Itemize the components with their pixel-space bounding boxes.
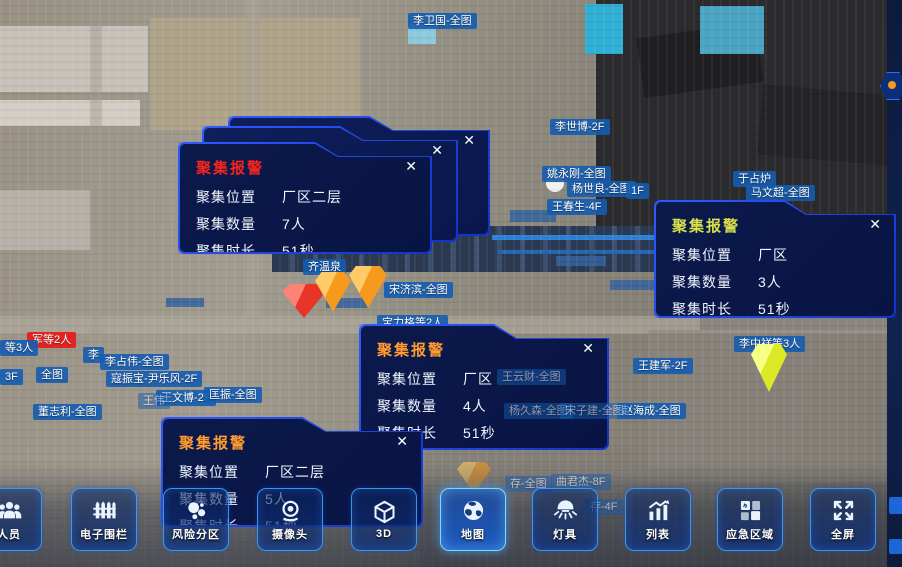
alarm-popup: 聚集报警聚集位置厂区聚集数量3人聚集时长51秒✕: [654, 200, 896, 318]
alarm-popup: 聚集报警聚集位置厂区二层聚集数量7人聚集时长51秒✕: [178, 142, 432, 254]
toolbar-button-label: 应急区域: [726, 526, 774, 542]
alarm-popup-body: 聚集报警聚集位置厂区聚集数量4人聚集时长51秒✕: [361, 326, 607, 448]
alarm-row-label: 聚集位置: [196, 187, 256, 207]
alarm-row-value: 4人: [463, 396, 487, 416]
surveillance-map-screen: 李卫国-全图李世博-2F姚永刚-全图杨世良-全图1F王春生-4F于占炉马文超-全…: [0, 0, 902, 567]
map-label-person[interactable]: 等3人: [0, 340, 38, 356]
alarm-row-value: 3人: [758, 272, 782, 292]
fence-icon: [91, 497, 118, 524]
camera-icon: [277, 497, 304, 524]
toolbar-button-camera[interactable]: 摄像头: [257, 488, 323, 551]
alarm-row-value: 51秒: [758, 299, 791, 319]
alarm-popup-row: 聚集位置厂区二层: [196, 187, 414, 207]
toolbar-button-label: 地图: [461, 526, 485, 542]
toolbar-button-fullscreen[interactable]: 全屏: [810, 488, 876, 551]
close-icon[interactable]: ✕: [431, 143, 443, 157]
map-label-person[interactable]: 李世博-2F: [550, 119, 610, 135]
alarm-row-label: 聚集数量: [377, 396, 437, 416]
risk-icon: [183, 497, 210, 524]
alarm-popup-body: 聚集报警聚集位置厂区聚集数量3人聚集时长51秒✕: [656, 202, 894, 316]
map-label-person[interactable]: 董志利-全图: [33, 404, 102, 420]
map-label-person[interactable]: 王春生-4F: [547, 199, 607, 215]
alarm-popup-row: 聚集数量3人: [672, 272, 878, 292]
toolbar-button-cube[interactable]: 3D: [351, 488, 417, 551]
fullscreen-icon: [830, 497, 857, 524]
alarm-row-value: 51秒: [463, 423, 496, 443]
alarm-popup-row: 聚集位置厂区: [672, 245, 878, 265]
toolbar-button-label: 列表: [646, 526, 670, 542]
toolbar-button-list[interactable]: 列表: [625, 488, 691, 551]
map-label-person[interactable]: 匡振-全图: [204, 387, 262, 403]
toolbar-button-label: 风险分区: [172, 526, 220, 542]
map-label-person[interactable]: 王云财-全图: [497, 369, 566, 385]
alarm-row-value: 厂区二层: [282, 187, 342, 207]
alarm-popup-row: 聚集时长51秒: [672, 299, 878, 319]
alarm-popup-title: 聚集报警: [196, 157, 414, 178]
toolbar-button-label: 灯具: [553, 526, 577, 542]
toolbar-button-label: 人员: [0, 526, 21, 542]
map-label-person[interactable]: 3F: [0, 369, 23, 385]
alarm-row-label: 聚集位置: [179, 462, 239, 482]
toolbar-button-emergency[interactable]: 应急区域: [717, 488, 783, 551]
emergency-icon: [737, 497, 764, 524]
map-label-person[interactable]: 王伟: [138, 393, 170, 409]
toolbar-button-label: 全屏: [831, 526, 855, 542]
alarm-row-label: 聚集数量: [196, 214, 256, 234]
toolbar-button-lamp[interactable]: 灯具: [532, 488, 598, 551]
lamp-icon: [552, 497, 579, 524]
alarm-row-value: 7人: [282, 214, 306, 234]
toolbar-button-label: 电子围栏: [80, 526, 128, 542]
alarm-row-label: 聚集时长: [672, 299, 732, 319]
map-label-person[interactable]: 宋济滨-全图: [384, 282, 453, 298]
list-icon: [645, 497, 672, 524]
cube-icon: [371, 499, 398, 526]
map-label-person[interactable]: 1F: [626, 183, 649, 199]
alarm-popup-title: 聚集报警: [179, 432, 405, 453]
alarm-row-label: 聚集位置: [672, 245, 732, 265]
alarm-popup-body: 聚集报警聚集位置厂区二层聚集数量7人聚集时长51秒✕: [180, 144, 430, 252]
map-label-person[interactable]: 李卫国-全图: [408, 13, 477, 29]
alarm-popup-row: 聚集数量7人: [196, 214, 414, 234]
alarm-popup-row: 聚集位置厂区二层: [179, 462, 405, 482]
alarm-row-label: 聚集数量: [672, 272, 732, 292]
map-label-person[interactable]: 马文超-全图: [746, 185, 815, 201]
alarm-popup-title: 聚集报警: [377, 339, 591, 360]
toolbar-button-fence[interactable]: 电子围栏: [71, 488, 137, 551]
map-label-person[interactable]: 李占伟-全图: [100, 354, 169, 370]
toolbar-button-risk[interactable]: 风险分区: [163, 488, 229, 551]
alarm-row-value: 厂区: [758, 245, 788, 265]
orange-dot-icon: [888, 81, 896, 89]
toolbar-button-globe[interactable]: 地图: [440, 488, 506, 551]
people-icon: [0, 497, 23, 524]
map-label-person[interactable]: 王建军-2F: [633, 358, 693, 374]
alarm-row-value: 厂区二层: [265, 462, 325, 482]
map-label-person[interactable]: 寇振宝-尹乐风-2F: [106, 371, 202, 387]
alarm-row-value: 厂区: [463, 369, 493, 389]
alarm-row-label: 聚集位置: [377, 369, 437, 389]
close-icon[interactable]: ✕: [396, 434, 408, 448]
globe-icon: [460, 497, 487, 524]
map-label-person[interactable]: 全图: [36, 367, 68, 383]
bottom-toolbar: 人员电子围栏风险分区摄像头3D地图灯具列表应急区域全屏: [0, 483, 902, 567]
map-label-person[interactable]: 宋子建-全图: [560, 403, 629, 419]
toolbar-button-label: 摄像头: [272, 526, 308, 542]
close-icon[interactable]: ✕: [463, 133, 475, 147]
toolbar-button-people[interactable]: 人员: [0, 488, 42, 551]
alarm-popup-title: 聚集报警: [672, 215, 878, 236]
close-icon[interactable]: ✕: [405, 159, 417, 173]
map-label-person[interactable]: 姚永刚-全图: [542, 166, 611, 182]
close-icon[interactable]: ✕: [869, 217, 881, 231]
toolbar-button-label: 3D: [376, 528, 392, 540]
close-icon[interactable]: ✕: [582, 341, 594, 355]
